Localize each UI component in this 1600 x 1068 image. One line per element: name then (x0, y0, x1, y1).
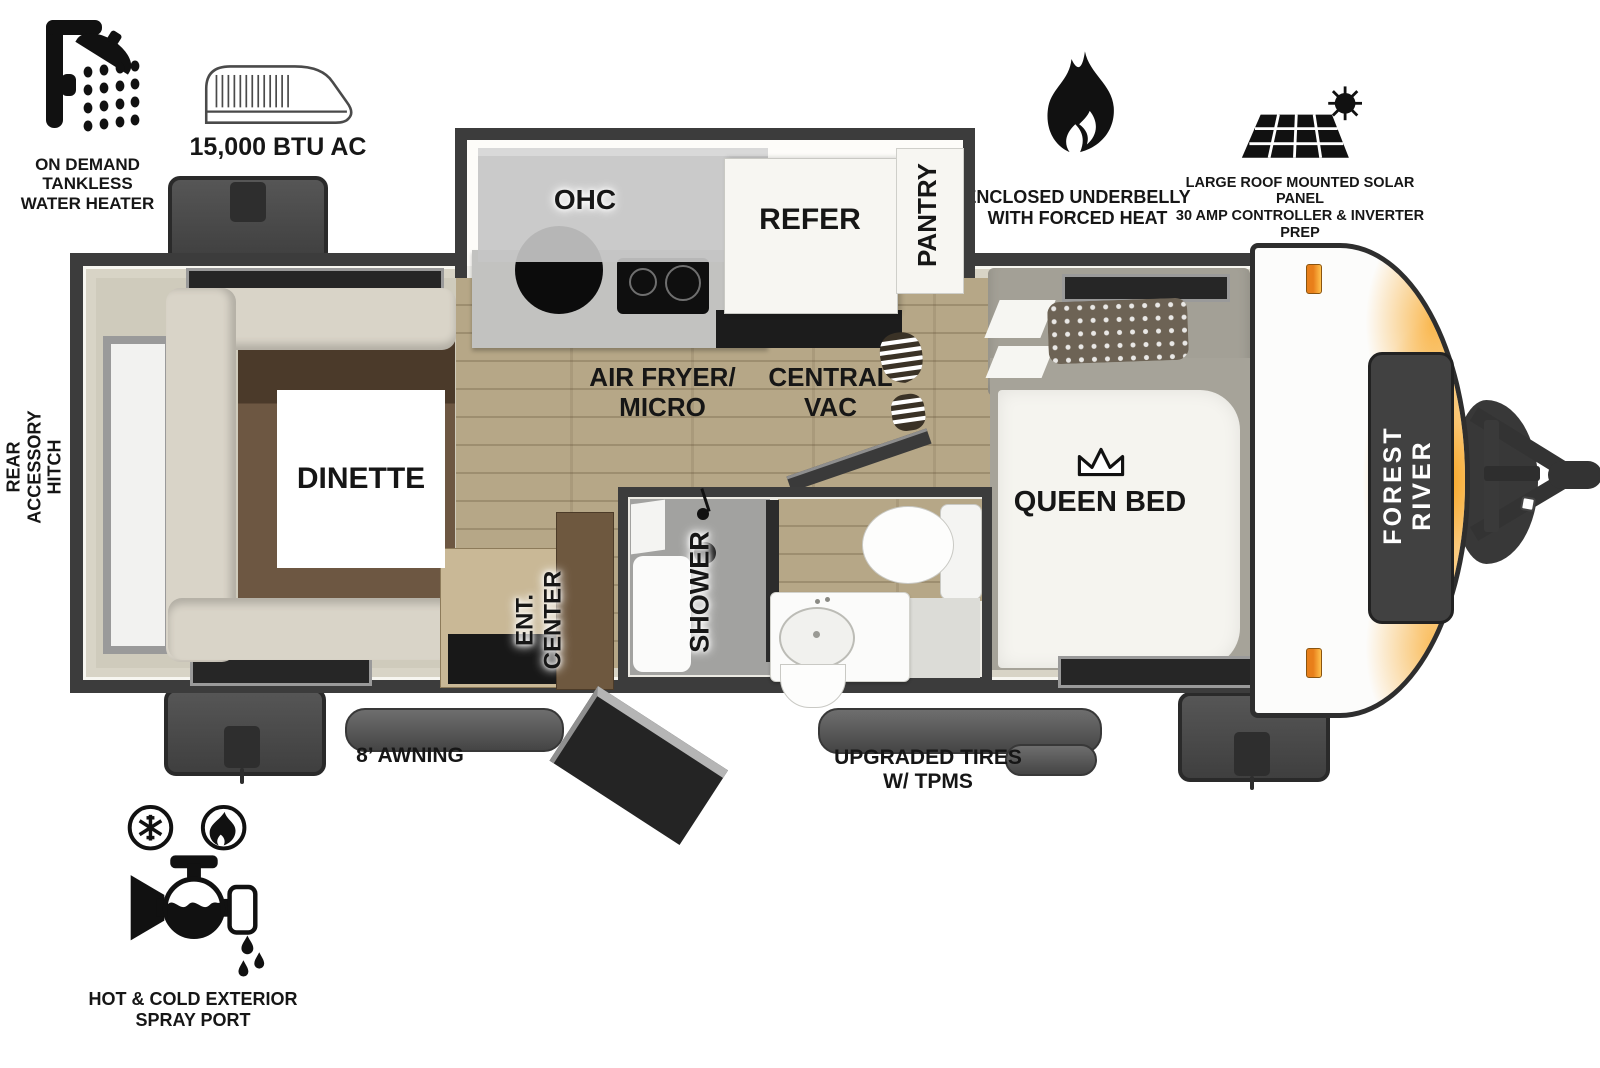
hitch-a-frame (1470, 398, 1600, 550)
solar-label: LARGE ROOF MOUNTED SOLAR PANEL 30 AMP CO… (1165, 184, 1435, 232)
rear-stabilizer-tank (164, 688, 326, 776)
floorplan-canvas: ON DEMAND TANKLESS WATER HEATER 15,000 B… (0, 0, 1600, 1068)
solar-panel-icon (1240, 86, 1362, 176)
toilet-bowl (862, 506, 954, 584)
queen-mattress (998, 390, 1240, 668)
ac-label: 15,000 BTU AC (168, 132, 388, 162)
ent-center-label: ENT. CENTER (480, 533, 600, 708)
marker-light-bottom (1306, 648, 1322, 678)
bedroom-top-window (1062, 274, 1230, 302)
shower-head-icon (28, 14, 146, 146)
bath-counter (906, 598, 980, 678)
bedroom-bottom-window (1058, 656, 1254, 688)
underbelly-label: ENCLOSED UNDERBELLY WITH FORCED HEAT (955, 180, 1200, 236)
spray-port-icon (112, 800, 272, 978)
air-fryer-label: AIR FRYER/ MICRO (575, 364, 750, 422)
front-storage-tank (168, 176, 328, 264)
marker-light-top (1306, 264, 1322, 294)
crown-icon (1072, 444, 1130, 480)
rear-wall-window (103, 336, 173, 654)
spray-port-label: HOT & COLD EXTERIOR SPRAY PORT (78, 982, 308, 1038)
entry-step (550, 686, 728, 845)
dinette-sofa-bottom (168, 598, 456, 660)
water-heater-label: ON DEMAND TANKLESS WATER HEATER (5, 150, 170, 218)
awning-label: 8’ AWNING (330, 742, 490, 770)
cooktop (617, 258, 709, 314)
entry-grab-handle (780, 664, 846, 708)
shower-label: SHOWER (671, 520, 731, 665)
pantry-label: PANTRY (898, 150, 958, 280)
bed-pillow (1047, 298, 1189, 365)
shower-seat (631, 500, 665, 555)
flame-icon (1035, 48, 1131, 166)
queen-bed-label: QUEEN BED (1000, 486, 1200, 520)
refer-label: REFER (724, 190, 896, 250)
ohc-label: OHC (520, 178, 650, 222)
tires-label: UPGRADED TIRES W/ TPMS (818, 742, 1038, 798)
ac-unit-icon (196, 52, 358, 138)
rear-hitch-label: REAR ACCESSORY HITCH (0, 385, 70, 550)
brand-label: FOREST RIVER (1378, 375, 1438, 595)
dinette-label: DINETTE (277, 390, 445, 568)
